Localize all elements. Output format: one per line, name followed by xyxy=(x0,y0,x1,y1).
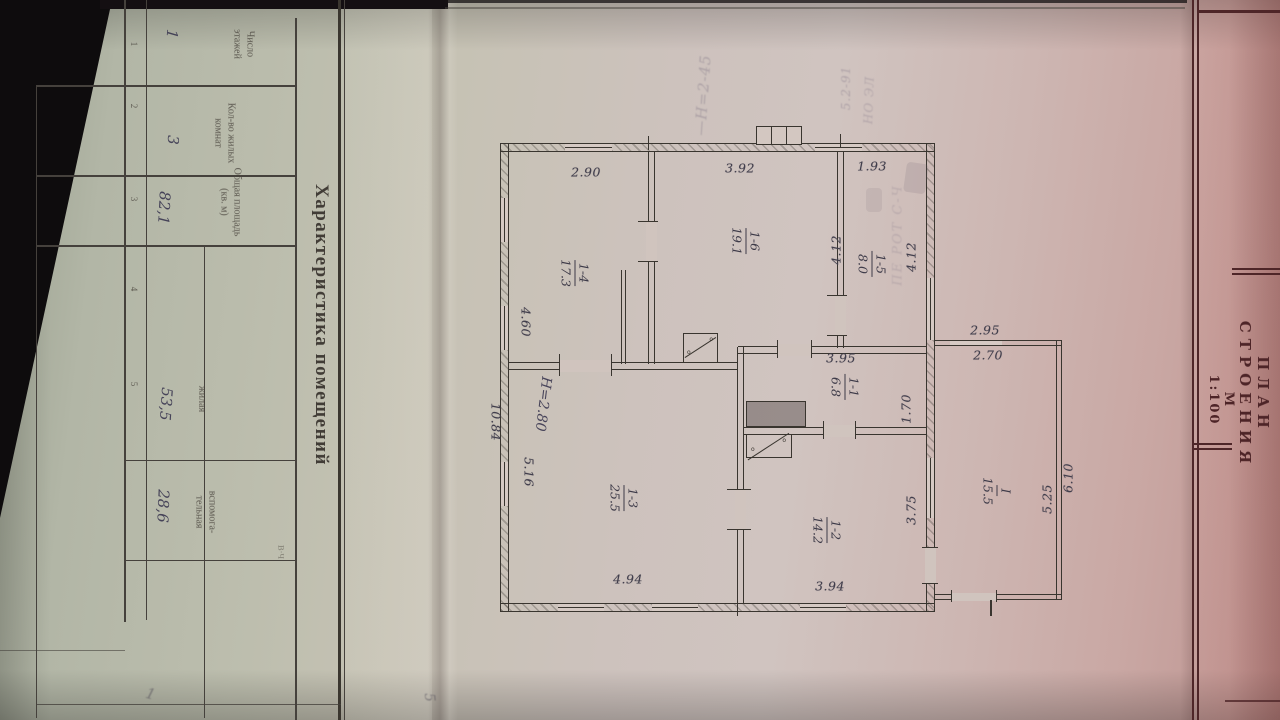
table-line-v4 xyxy=(295,18,297,720)
dim-top-3: 1.93 xyxy=(857,159,887,174)
title-block-rule-top xyxy=(1197,10,1280,13)
entrance-porch xyxy=(756,126,802,145)
ghost-blob xyxy=(866,188,882,212)
jamb-tick xyxy=(559,354,560,376)
dim-annex-right-outer: 6.10 xyxy=(1061,463,1076,493)
stove-circle: o xyxy=(751,446,755,453)
dim-left-3: 5.16 xyxy=(522,457,537,487)
dim-tick xyxy=(648,136,649,150)
room-label-annex: I 15.5 xyxy=(981,477,1014,505)
room-number: 1-1 xyxy=(845,374,862,400)
room-area: 15.5 xyxy=(981,477,997,505)
door-gap-4 xyxy=(560,360,612,372)
background-wedge xyxy=(0,0,112,518)
door-gap-1 xyxy=(646,222,657,262)
ghost-mark-bottom-2: 5 xyxy=(421,692,438,703)
flue-column xyxy=(621,270,626,364)
title-block-rule-b2 xyxy=(1192,448,1232,450)
room-number: I xyxy=(997,486,1014,497)
dim-tick xyxy=(737,600,738,616)
table-colnum-5: 5 xyxy=(129,382,139,387)
table-header-living-area: жилая xyxy=(195,386,208,412)
porch-divider-2 xyxy=(786,127,787,144)
window-top-1 xyxy=(565,143,612,152)
dim-bottom-1: 4.94 xyxy=(613,572,643,587)
table-colnum-2: 2 xyxy=(129,104,139,109)
dim-right-170: 1.70 xyxy=(899,394,914,424)
room-label-1-1: 1-1 6.8 xyxy=(829,374,862,400)
room-area: 25.5 xyxy=(608,484,624,512)
dim-left-2: 10.84 xyxy=(489,403,504,441)
room-label-1-2: 1-2 14.2 xyxy=(811,516,844,544)
table-note: В·Ч xyxy=(276,545,287,559)
room-number: 1-3 xyxy=(624,485,641,511)
jamb-tick xyxy=(922,583,938,584)
table-value-aux-area: 28,6 xyxy=(153,489,172,523)
room-label-1-4: 1-4 17.3 xyxy=(559,259,592,287)
title-block-rule-v1 xyxy=(1192,0,1194,720)
dim-bottom-2: 3.94 xyxy=(815,579,845,594)
annex-bottom-tick xyxy=(990,600,992,616)
jamb-tick xyxy=(951,590,952,602)
table-header-floors: Число этажей xyxy=(231,29,256,59)
table-value-rooms: 3 xyxy=(164,135,182,145)
table-title: Характеристика помещений xyxy=(310,184,332,466)
jamb-tick xyxy=(855,421,856,439)
ghost-mark-height: —Н=2-45 xyxy=(691,54,715,136)
jamb-tick xyxy=(811,340,812,358)
table-line-v2 xyxy=(146,0,147,620)
window-right-1 xyxy=(926,278,935,340)
jamb-tick xyxy=(727,529,751,530)
room-area: 19.1 xyxy=(730,227,746,255)
table-rule-thick xyxy=(338,0,341,720)
table-value-living-area: 53,5 xyxy=(156,387,176,422)
stove-symbol-2: o o xyxy=(746,434,792,458)
title-block-rule-a2 xyxy=(1232,273,1280,275)
ghost-blob xyxy=(903,162,929,195)
window-bottom-2 xyxy=(652,603,698,612)
dim-top-2: 3.92 xyxy=(725,161,755,176)
background-top-line xyxy=(445,0,1187,3)
title-block-rule-b1 xyxy=(1192,443,1232,445)
room-area: 17.3 xyxy=(559,259,575,287)
ghost-mark-1: НО ЭЛ xyxy=(861,76,877,125)
ghost-mark-2: ПЕ РОТ С-Ч xyxy=(891,184,906,286)
paper-fold-shadow xyxy=(428,0,458,720)
table-colnum-4: 4 xyxy=(129,287,139,292)
room-number: 1-4 xyxy=(575,260,592,286)
jamb-tick xyxy=(827,335,847,336)
plan-scale: М 1:100 xyxy=(1206,371,1236,430)
door-gap-3 xyxy=(735,490,746,530)
table-colnum-1: 1 xyxy=(129,42,139,47)
table-line-h3 xyxy=(36,245,296,247)
room-area: 8.0 xyxy=(856,254,872,274)
stove-bench-block xyxy=(746,401,806,427)
table-value-floors: 1 xyxy=(163,28,182,39)
dim-tick xyxy=(840,134,841,148)
room-area: 6.8 xyxy=(829,377,845,397)
room-label-1-3: 1-3 25.5 xyxy=(608,484,641,512)
porch-divider-1 xyxy=(771,127,772,144)
plan-title: ПЛАН СТРОЕНИЯ xyxy=(1236,321,1272,469)
jamb-tick xyxy=(611,354,612,376)
table-rule-thin xyxy=(344,0,345,720)
stove-circle: o xyxy=(687,349,691,356)
dim-right-412b: 4.12 xyxy=(904,242,919,272)
table-line-h1 xyxy=(36,85,296,87)
outer-wall-right xyxy=(926,143,935,612)
table-line-h4 xyxy=(124,460,296,461)
table-line-v1 xyxy=(124,0,126,622)
jamb-tick xyxy=(922,547,938,548)
annex-window-top xyxy=(950,340,1002,346)
jamb-tick xyxy=(727,489,751,490)
dim-right-375: 3.75 xyxy=(904,495,919,525)
dim-annex-top-inner: 2.70 xyxy=(973,348,1003,363)
window-bottom-3 xyxy=(800,603,846,612)
window-left-3 xyxy=(500,462,509,506)
door-gap-2 xyxy=(835,296,846,336)
room-number: 1-6 xyxy=(746,228,763,254)
window-top-2 xyxy=(815,143,862,152)
table-header-aux-area: вспомога- тельная xyxy=(193,491,218,533)
dim-right-412a: 4.12 xyxy=(829,235,844,265)
window-left-2 xyxy=(500,306,509,350)
jamb-tick xyxy=(638,221,658,222)
table-header-rooms: Кол-во жилых комнат xyxy=(212,103,237,163)
jamb-tick xyxy=(638,261,658,262)
upper-sheet-edge-line xyxy=(445,7,1185,9)
room-label-1-5: 1-5 8.0 xyxy=(856,251,889,277)
table-line-h7 xyxy=(36,704,341,705)
partition-1-3-1-2 xyxy=(737,347,744,603)
jamb-tick xyxy=(996,590,997,602)
title-block-rule-v2 xyxy=(1197,0,1199,720)
table-value-total-area: 82,1 xyxy=(154,191,174,225)
window-bottom-1 xyxy=(558,603,604,612)
dim-top-1: 2.90 xyxy=(571,165,601,180)
stove-symbol-1: o o xyxy=(683,333,718,363)
table-line-v3 xyxy=(204,245,205,718)
jamb-tick xyxy=(823,421,824,439)
ghost-mark-bottom-1: 1 xyxy=(144,684,159,704)
table-line-h6 xyxy=(0,650,125,651)
background-strip-light xyxy=(344,0,432,720)
stove-circle: o xyxy=(782,437,786,444)
stove-circle: o xyxy=(709,336,713,343)
height-note: Н=2.80 xyxy=(532,376,555,433)
background-top-strip xyxy=(100,0,448,9)
ghost-mark-date: 5.2-91 xyxy=(839,66,853,110)
room-number: 1-5 xyxy=(872,251,889,277)
table-line-h5 xyxy=(124,560,296,561)
title-block-rule-a1 xyxy=(1232,268,1280,270)
table-colnum-3: 3 xyxy=(129,197,139,202)
door-gap-6 xyxy=(824,425,856,437)
window-right-2 xyxy=(926,458,935,518)
dim-annex-top-outer: 2.95 xyxy=(970,323,1000,338)
table-header-total-area: Общая площадь (кв. м) xyxy=(218,168,243,237)
room-label-1-6: 1-6 19.1 xyxy=(730,227,763,255)
title-block-rule-bottom xyxy=(1225,700,1280,702)
door-gap-5 xyxy=(778,344,812,356)
window-left-1 xyxy=(500,198,509,242)
jamb-tick xyxy=(827,295,847,296)
door-gap-annex xyxy=(925,548,936,584)
room-area: 14.2 xyxy=(811,516,827,544)
dim-inner-395: 3.95 xyxy=(826,351,856,366)
table-line-h2 xyxy=(36,175,296,177)
table-line-v5 xyxy=(36,86,37,718)
partition-1-4-1-3 xyxy=(509,362,738,370)
room-number: 1-2 xyxy=(827,517,844,543)
jamb-tick xyxy=(777,340,778,358)
photo-of-floor-plan-document: Характеристика помещений Число этажей Ко… xyxy=(0,0,1280,720)
dim-left-1: 4.60 xyxy=(519,307,534,337)
dim-annex-right-inner: 5.25 xyxy=(1040,484,1055,514)
